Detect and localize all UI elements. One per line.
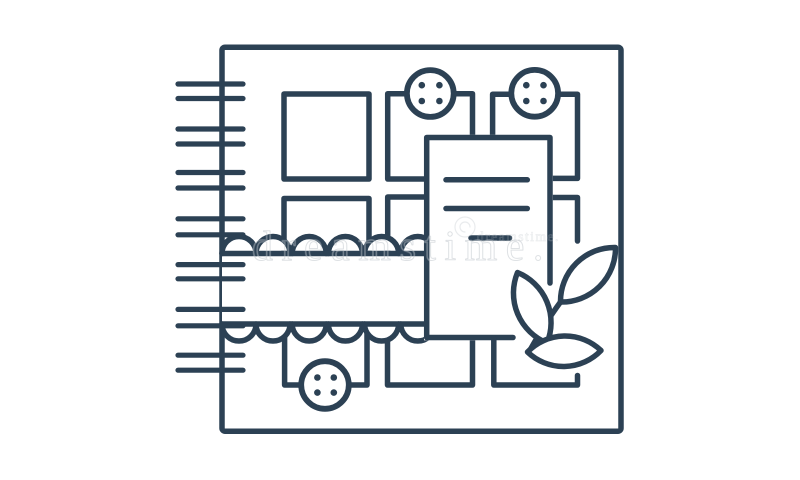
svg-text:dreamstime.: dreamstime. [477, 229, 560, 244]
